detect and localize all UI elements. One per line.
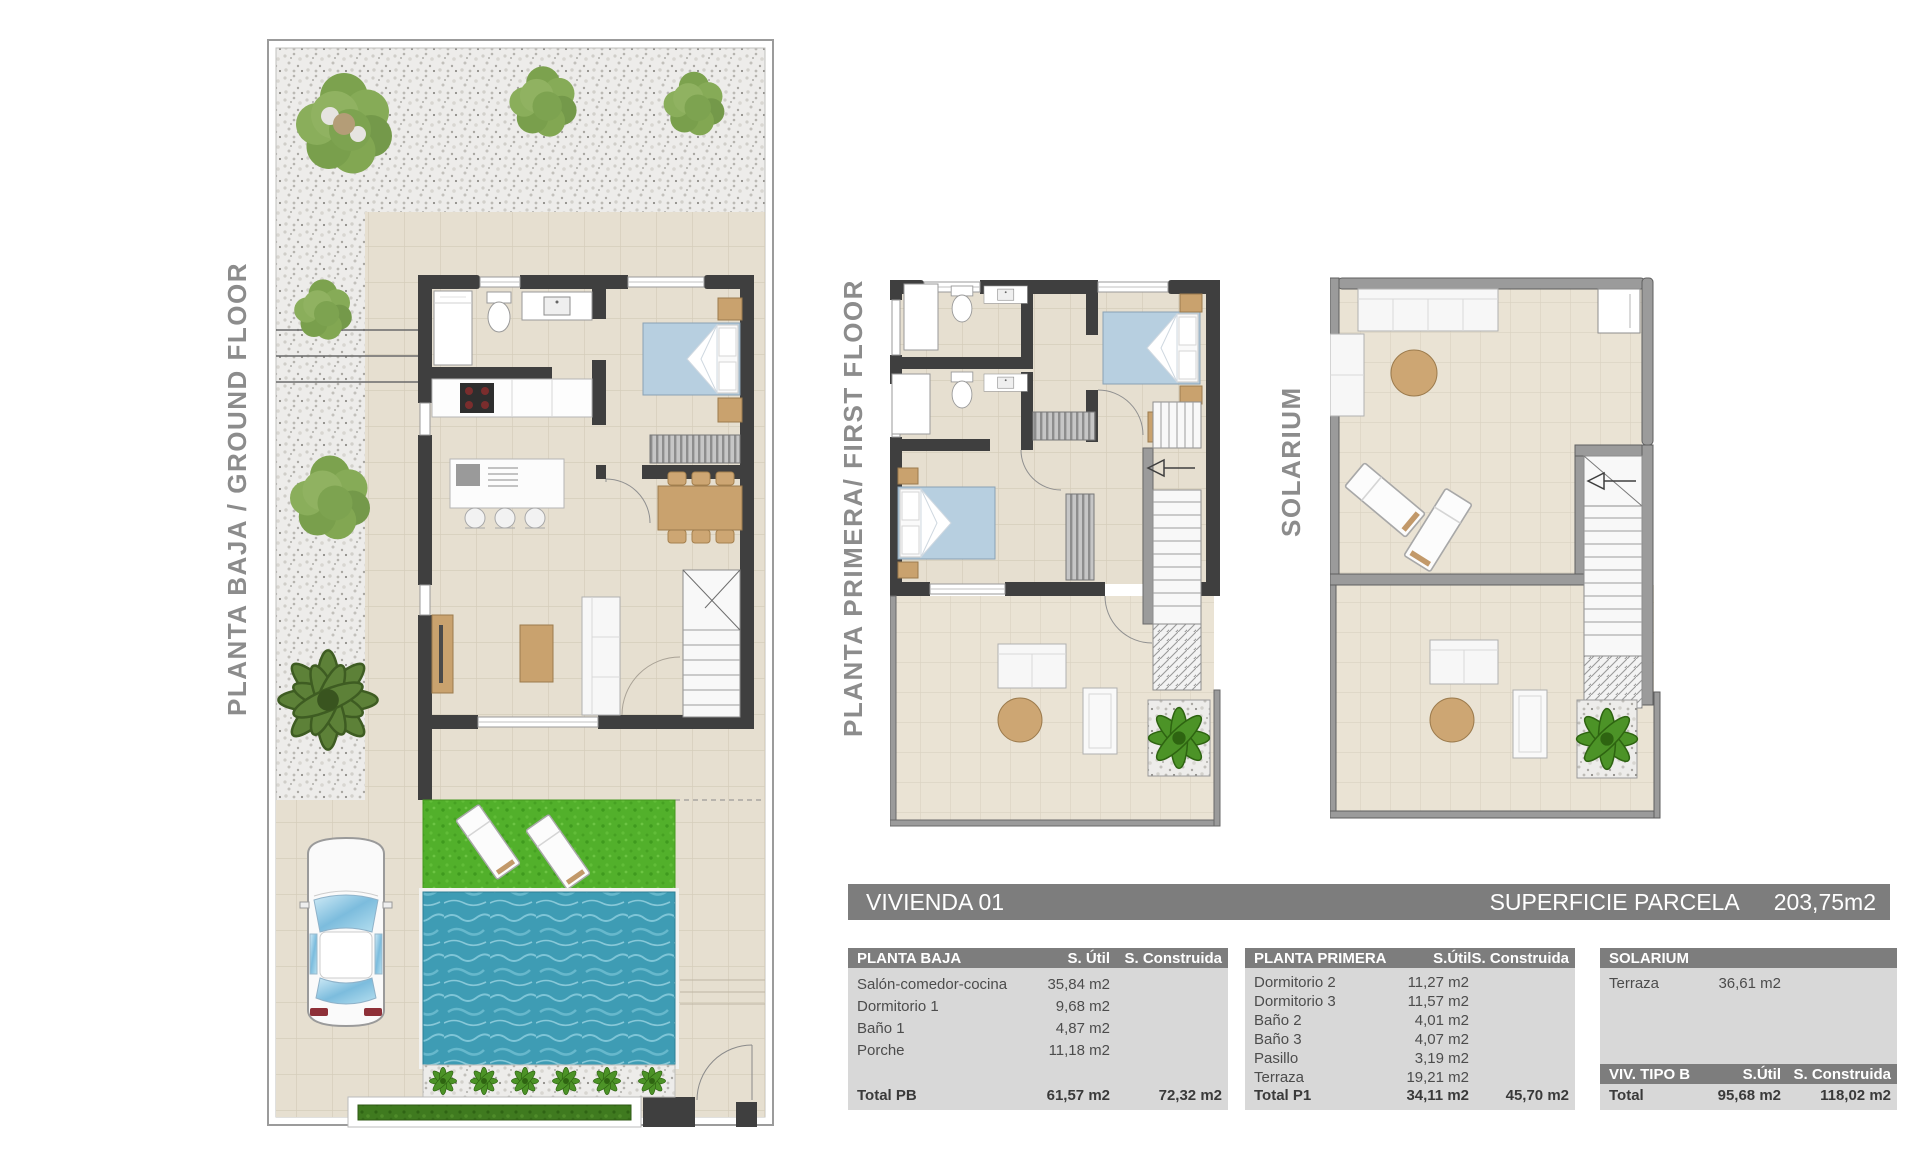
table-header: PLANTA BAJA S. Útil S. Construida [848,948,1228,968]
table-row: Dormitorio 211,27 m2 [1245,973,1575,992]
table-row: Porche11,18 m2 [848,1039,1228,1061]
table-header: PLANTA PRIMERA S.Útil S. Construida [1245,948,1575,968]
storage-unit [1598,289,1640,333]
palm-icon [278,650,377,749]
bed [643,323,740,395]
lounge-chair [1083,688,1117,754]
stairs [683,570,740,717]
first-floor-plan [890,272,1250,832]
round-table [1391,350,1437,396]
table-total-row: Total PB 61,57 m2 72,32 m2 [848,1084,1228,1107]
lounge-chair [1513,690,1547,758]
dining-table [658,486,742,530]
table-planta-baja: PLANTA BAJA S. Útil S. Construida Salón-… [848,948,1228,1110]
parcel-area-label: SUPERFICIE PARCELA [1490,889,1740,916]
car-icon [300,838,392,1026]
solarium-plan [1330,272,1690,822]
table-header: SOLARIUM [1600,948,1897,968]
table-row: Terraza36,61 m2 [1600,973,1897,994]
viv-tipo-b-header: VIV. TIPO B S.Útil S. Construida [1600,1064,1897,1084]
table-solarium: SOLARIUM Terraza36,61 m2 VIV. TIPO B S.Ú… [1600,948,1897,1110]
pool [419,888,679,1069]
table-row: Salón-comedor-cocina35,84 m2 [848,973,1228,995]
dining-area [658,472,742,543]
bed [1103,312,1200,384]
table-row: Baño 34,07 m2 [1245,1030,1575,1049]
solarium-label: SOLARIUM [1276,386,1307,537]
parcel-area-value: 203,75m2 [1774,889,1876,916]
sofa [582,597,620,715]
garden-lawn [423,800,675,892]
table-row: Dormitorio 19,68 m2 [848,995,1228,1017]
coffee-table [520,625,553,682]
table-row: Baño 14,87 m2 [848,1017,1228,1039]
stairs [1584,456,1642,708]
first-floor-label: PLANTA PRIMERA/ FIRST FLOOR [838,279,869,737]
floorplan-sheet: PLANTA BAJA / GROUND FLOOR PLANTA PRIMER… [0,0,1920,1166]
table-row: Baño 24,01 m2 [1245,1011,1575,1030]
table-planta-primera: PLANTA PRIMERA S.Útil S. Construida Dorm… [1245,948,1575,1110]
dwelling-title: VIVIENDA 01 [848,889,1490,916]
ground-floor-plan [260,30,780,1140]
bed [898,487,995,559]
planting-bed [423,1065,675,1097]
table-row: Pasillo3,19 m2 [1245,1049,1575,1068]
ground-floor-label: PLANTA BAJA / GROUND FLOOR [222,262,253,716]
round-table [998,698,1042,742]
round-table [1430,698,1474,742]
wardrobe [650,435,740,463]
table-total-row: Total 95,68 m2 118,02 m2 [1600,1084,1897,1107]
summary-title-bar: VIVIENDA 01 SUPERFICIE PARCELA 203,75m2 [848,884,1890,920]
table-row: Dormitorio 311,57 m2 [1245,992,1575,1011]
table-total-row: Total P1 34,11 m2 45,70 m2 [1245,1084,1575,1107]
